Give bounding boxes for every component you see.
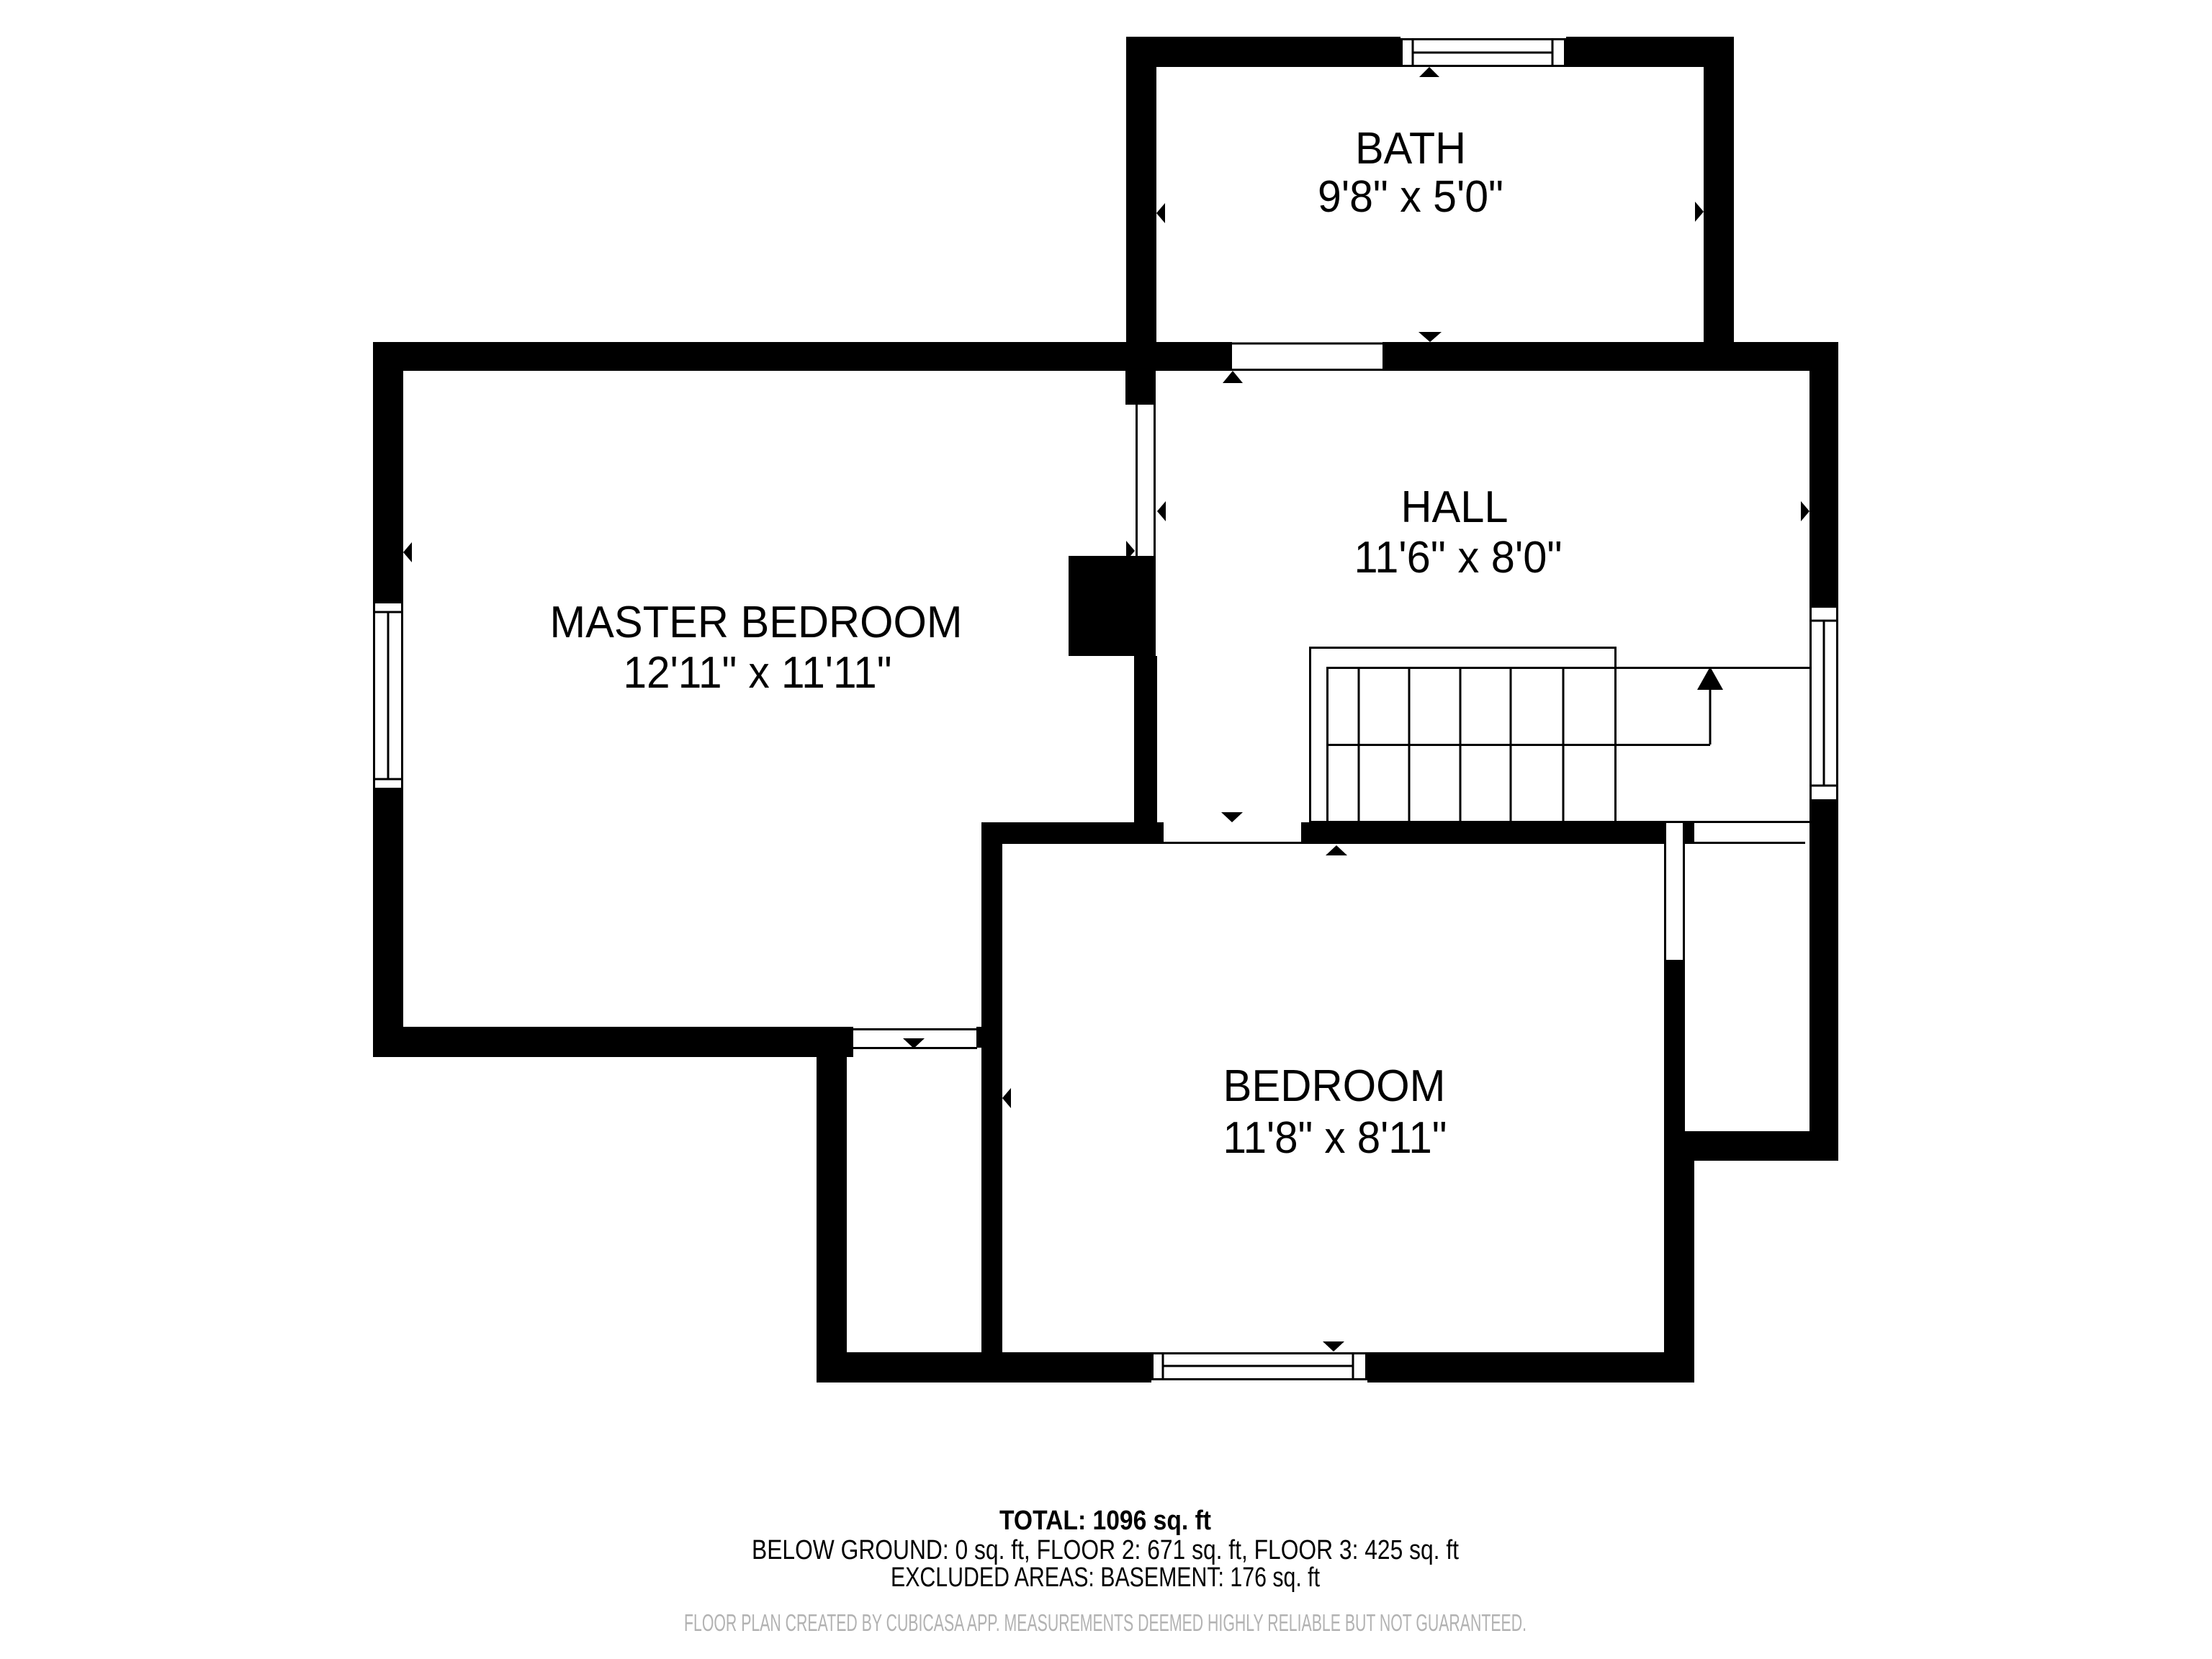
svg-text:BELOW GROUND: 0 sq. ft, FLOOR: BELOW GROUND: 0 sq. ft, FLOOR 2: 671 sq.… [752,1535,1459,1565]
svg-text:11'8" x 8'11": 11'8" x 8'11" [1223,1113,1447,1163]
svg-text:BEDROOM: BEDROOM [1223,1061,1446,1111]
svg-text:HALL: HALL [1401,482,1509,532]
svg-text:BATH: BATH [1355,124,1466,174]
svg-text:12'11" x 11'11": 12'11" x 11'11" [624,648,892,698]
svg-text:EXCLUDED AREAS: BASEMENT: 176: EXCLUDED AREAS: BASEMENT: 176 sq. ft [891,1563,1320,1593]
svg-text:MASTER BEDROOM: MASTER BEDROOM [550,598,963,647]
svg-text:11'6" x 8'0": 11'6" x 8'0" [1354,533,1563,583]
svg-text:FLOOR PLAN CREATED BY CUBICASA: FLOOR PLAN CREATED BY CUBICASA APP. MEAS… [684,1609,1527,1636]
svg-text:9'8" x 5'0": 9'8" x 5'0" [1318,172,1503,222]
svg-text:TOTAL: 1096 sq. ft: TOTAL: 1096 sq. ft [999,1506,1211,1536]
